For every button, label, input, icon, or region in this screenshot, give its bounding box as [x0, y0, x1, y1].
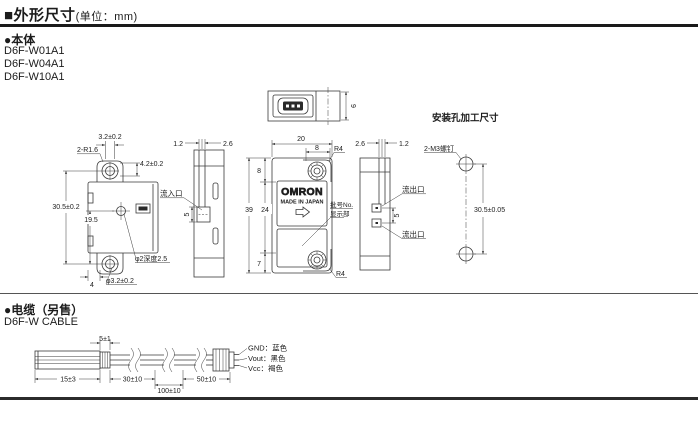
lot-label-line2: 显示部: [330, 209, 350, 218]
mounting-hole-drawing: 安装孔加工尺寸 2-M3螺钉 30.5±0.05: [424, 112, 505, 264]
dim-mount-hole: φ3.2±0.2: [106, 278, 134, 285]
cable-drawing: GND：蓝色 Vout：黑色 Vcc：褐色 5±1 15±3 30±10: [0, 335, 698, 397]
unit-note: (单位：mm): [76, 11, 138, 23]
dim-wall-left: 1.2: [173, 141, 183, 148]
lot-label-line1: 批号No.: [330, 200, 353, 209]
inlet-label: 流入口: [160, 188, 183, 198]
dim-seg1: 30±10: [123, 377, 143, 384]
cable-model: D6F-W CABLE: [4, 316, 78, 328]
dim-outlet-port: 5: [394, 213, 401, 217]
mounting-view-title: 安装孔加工尺寸: [432, 112, 499, 124]
bottom-rule: [0, 397, 698, 400]
dim-center-hole: φ2深度2.5: [135, 254, 167, 263]
dimension-drawings: 3.2±0.2 2-R1.6 4.2±0.2 30.5±0.2 19.5: [0, 85, 698, 295]
dim-ear-height: 4.2±0.2: [140, 161, 163, 168]
datasheet-page: ■外形尺寸(单位：mm) ●本体 D6F-W01A1 D6F-W04A1 D6F…: [0, 0, 698, 423]
origin-label: MADE IN JAPAN: [281, 200, 324, 206]
right-side-view-drawing: 2.6 1.2 流出口 流出口 5: [355, 139, 426, 270]
dim-seg2: 100±10: [157, 388, 180, 395]
flow-direction-arrow-icon: [296, 207, 310, 217]
left-side-view-drawing: 1.2 2.6 流入口 5: [160, 139, 233, 277]
dim-seg3: 50±10: [197, 377, 217, 384]
model-item: D6F-W01A1: [4, 45, 65, 58]
outlet-label-bottom: 流出口: [402, 229, 425, 239]
wire-vcc-label: Vcc：褐色: [248, 363, 284, 373]
top-view-drawing: 9: [268, 87, 356, 125]
dim-body: 24: [261, 207, 269, 214]
dim-ear-offset: 4: [90, 282, 94, 289]
wire-gnd-label: GND：蓝色: [248, 343, 288, 353]
dim-height: 39: [245, 207, 253, 214]
dim-strip: 5±1: [99, 336, 111, 343]
dim-ear-width: 8: [315, 145, 319, 152]
center-front-view-drawing: OMRON MADE IN JAPAN 批号No. 显示部 20 8 R4: [242, 136, 353, 278]
model-item: D6F-W10A1: [4, 71, 65, 84]
page-title: ■外形尺寸(单位：mm): [4, 4, 138, 25]
dim-depth: 9: [349, 104, 356, 108]
dim-mount-pitch: 30.5±0.2: [52, 204, 79, 211]
screw-label: 2-M3螺钉: [424, 144, 454, 153]
dim-ear-hole-width: 3.2±0.2: [98, 134, 121, 141]
model-list: D6F-W01A1 D6F-W04A1 D6F-W10A1: [4, 45, 65, 84]
model-item: D6F-W04A1: [4, 58, 65, 71]
section-divider: [0, 293, 698, 294]
dim-top-to-ear: 8: [257, 168, 261, 175]
outlet-label-top: 流出口: [402, 184, 425, 194]
dim-corner-radius: 2-R1.6: [77, 147, 98, 154]
dim-wall-right: 1.2: [399, 141, 409, 148]
dim-center-offset: 19.5: [84, 217, 98, 224]
title-rule: [0, 24, 698, 27]
dim-wall-left: 2.6: [355, 141, 365, 148]
cable-dimensions: 5±1 15±3 30±10 100±10 50±10: [35, 336, 230, 395]
cable-wire-labels: GND：蓝色 Vout：黑色 Vcc：褐色: [248, 343, 288, 374]
cable-outline: [35, 348, 247, 372]
dim-bottom-to-ear: 7: [257, 261, 261, 268]
wire-vout-label: Vout：黑色: [248, 353, 286, 363]
dim-lead: 15±3: [60, 377, 76, 384]
page-title-text: ■外形尺寸: [4, 7, 76, 24]
radius-top: R4: [334, 146, 343, 153]
radius-bottom: R4: [336, 271, 345, 278]
dim-wall-right: 2.6: [223, 141, 233, 148]
dim-inlet-port: 5: [184, 212, 191, 216]
dim-mounting-pitch: 30.5±0.05: [474, 207, 505, 214]
front-view-drawing: 3.2±0.2 2-R1.6 4.2±0.2 30.5±0.2 19.5: [52, 134, 170, 289]
brand-logo: OMRON: [281, 186, 323, 198]
dim-width: 20: [297, 136, 305, 143]
